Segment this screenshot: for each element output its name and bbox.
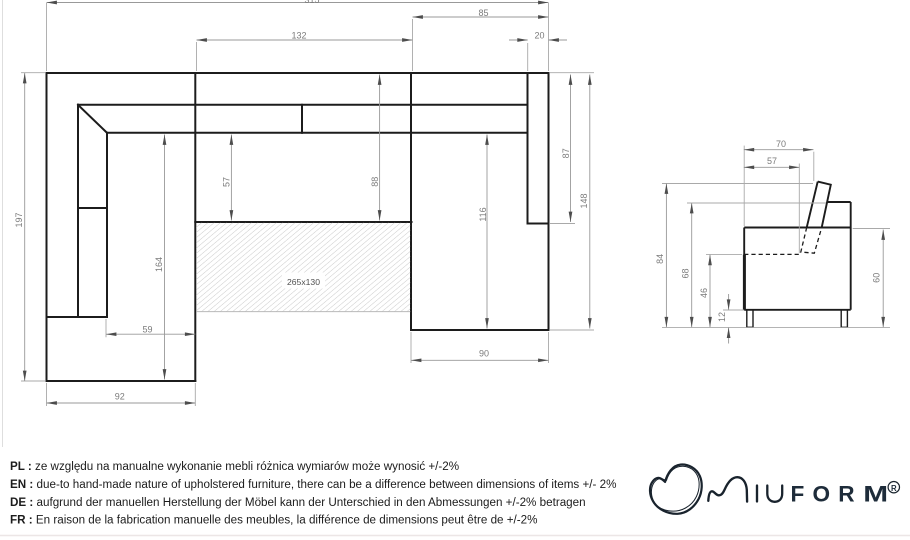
- svg-text:FR : En raison de la fabricati: FR : En raison de la fabrication manuell…: [10, 514, 537, 527]
- svg-text:46: 46: [699, 288, 709, 298]
- svg-text:12: 12: [717, 312, 727, 322]
- svg-text:116: 116: [478, 207, 488, 221]
- svg-text:R: R: [891, 484, 897, 493]
- svg-text:70: 70: [776, 139, 786, 149]
- svg-text:57: 57: [222, 177, 232, 187]
- svg-text:57: 57: [767, 156, 777, 166]
- svg-text:92: 92: [115, 392, 125, 402]
- svg-text:85: 85: [478, 8, 488, 18]
- svg-text:59: 59: [142, 325, 152, 335]
- svg-text:148: 148: [579, 193, 589, 208]
- svg-text:20: 20: [534, 31, 544, 41]
- svg-text:FOR: FOR: [791, 482, 863, 507]
- svg-text:132: 132: [291, 31, 306, 41]
- svg-text:315: 315: [304, 0, 319, 5]
- svg-text:84: 84: [655, 254, 665, 264]
- svg-text:90: 90: [479, 349, 489, 359]
- svg-text:DE : aufgrund der manuellen He: DE : aufgrund der manuellen Herstellung …: [10, 496, 586, 509]
- svg-text:265x130: 265x130: [287, 277, 320, 287]
- svg-text:87: 87: [561, 148, 571, 158]
- svg-text:68: 68: [681, 268, 691, 278]
- svg-text:197: 197: [14, 212, 24, 227]
- svg-text:164: 164: [154, 257, 164, 272]
- svg-text:88: 88: [370, 177, 380, 187]
- svg-text:M: M: [863, 481, 888, 507]
- svg-text:PL : ze względu na manualne wy: PL : ze względu na manualne wykonanie me…: [10, 460, 459, 473]
- svg-text:EN : due-to hand-made nature o: EN : due-to hand-made nature of upholste…: [10, 478, 616, 491]
- svg-text:60: 60: [872, 273, 882, 283]
